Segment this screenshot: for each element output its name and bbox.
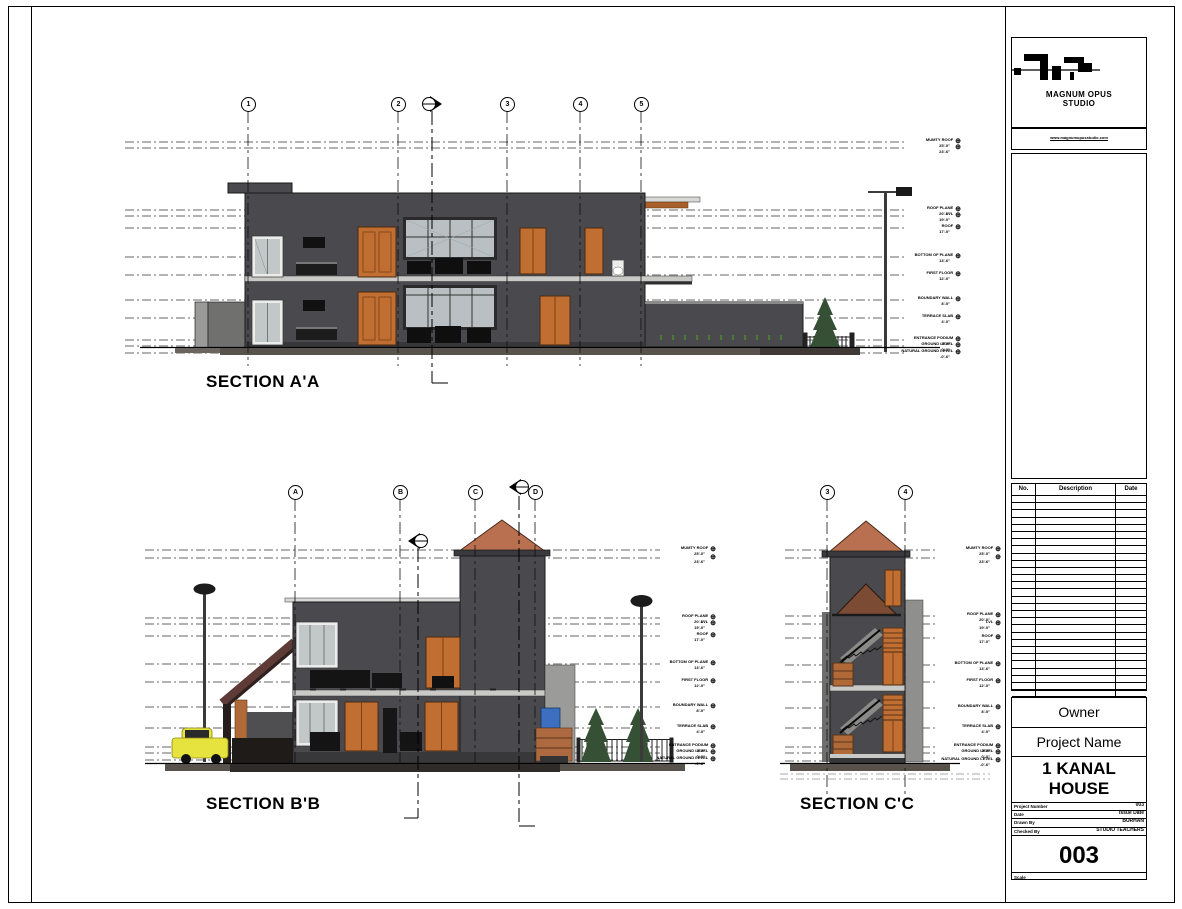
revision-row xyxy=(1012,532,1146,539)
grid-bubble-d: D xyxy=(528,485,543,500)
revision-row xyxy=(1012,582,1146,589)
scale-label: Scale xyxy=(1012,872,1146,885)
studio-name: MAGNUM OPUS STUDIO xyxy=(1012,90,1146,108)
binding-margin-line xyxy=(31,6,32,902)
level-label: LVL ⊕19'-0" xyxy=(648,620,716,631)
revision-row xyxy=(1012,669,1146,676)
field-checked-by: Checked BySTUDIO TEACHERS xyxy=(1012,828,1146,836)
level-label: ROOF ⊕17'-0" xyxy=(648,632,716,643)
door xyxy=(585,228,603,274)
door xyxy=(358,227,396,277)
revision-row xyxy=(1012,525,1146,532)
section-bb-title: SECTION B'B xyxy=(206,794,320,814)
level-label: BOUNDARY WALL ⊕8'-0" xyxy=(648,703,716,714)
level-label: TERRACE SLAB ⊕4'-0" xyxy=(893,314,961,325)
building-section-bb xyxy=(285,520,575,763)
level-label: ROOF ⊕17'-0" xyxy=(933,634,1001,645)
slat-screen xyxy=(883,695,903,720)
revision-row xyxy=(1012,618,1146,625)
section-aa-title: SECTION A'A xyxy=(206,372,320,392)
level-label: LVL ⊕19'-0" xyxy=(933,620,1001,631)
level-label: BOTTOM OF PLANE ⊕13'-6" xyxy=(893,253,961,264)
level-label: ⊕23'-6" xyxy=(933,554,1001,565)
revision-row xyxy=(1012,633,1146,640)
cabinet xyxy=(833,735,853,757)
revision-row xyxy=(1012,640,1146,647)
grid-bubble-5: 5 xyxy=(634,97,649,112)
revision-row xyxy=(1012,554,1146,561)
revision-row xyxy=(1012,518,1146,525)
level-label: ⊕23'-6" xyxy=(893,144,961,155)
furniture xyxy=(310,670,370,688)
level-label: ROOF ⊕17'-0" xyxy=(893,224,961,235)
section-aa-drawing xyxy=(120,85,965,400)
boundary-wall xyxy=(645,302,803,347)
revision-row xyxy=(1012,575,1146,582)
grid-bubble-2: 2 xyxy=(391,97,406,112)
tv xyxy=(303,237,325,248)
car-icon xyxy=(172,728,228,764)
revision-row xyxy=(1012,611,1146,618)
revision-row xyxy=(1012,496,1146,503)
carport xyxy=(223,643,295,763)
revision-row xyxy=(1012,676,1146,683)
level-label: FIRST FLOOR ⊕12'-0" xyxy=(933,678,1001,689)
grid-bubble-a: A xyxy=(288,485,303,500)
revision-row xyxy=(1012,661,1146,668)
cabinet xyxy=(833,663,853,686)
studio-logo xyxy=(1012,46,1102,86)
building-section-aa xyxy=(195,183,803,352)
section-marker-icon xyxy=(407,533,429,549)
wardrobe xyxy=(383,708,397,753)
level-label: BOTTOM OF PLANE ⊕13'-6" xyxy=(648,660,716,671)
title-block-divider xyxy=(1005,6,1006,902)
grid-bubble-4: 4 xyxy=(573,97,588,112)
title-block-blank-box xyxy=(1011,153,1147,479)
revision-row xyxy=(1012,561,1146,568)
level-label: BOTTOM OF PLANE ⊕13'-6" xyxy=(933,661,1001,672)
grid-bubble-c: C xyxy=(468,485,483,500)
section-marker-icon xyxy=(508,479,530,495)
level-label: LVL ⊕19'-0" xyxy=(893,212,961,223)
revision-row xyxy=(1012,597,1146,604)
section-marker-icon xyxy=(421,96,443,112)
door xyxy=(358,292,396,345)
level-label: NATURAL GROUND LEVEL ⊕-0'-6" xyxy=(893,349,961,360)
pyramid-roof xyxy=(458,520,546,552)
revision-row xyxy=(1012,589,1146,596)
revision-row xyxy=(1012,539,1146,546)
section-cc-drawing xyxy=(780,480,1005,830)
tower xyxy=(460,556,545,763)
revision-row xyxy=(1012,510,1146,517)
project-name: Project Name xyxy=(1012,728,1146,757)
revision-table-header: No. Description Date xyxy=(1012,484,1146,496)
plinth xyxy=(293,752,545,763)
grid-bubble-3: 3 xyxy=(500,97,515,112)
level-label: TERRACE SLAB ⊕4'-0" xyxy=(648,724,716,735)
owner-label: Owner xyxy=(1012,698,1146,728)
revision-row xyxy=(1012,604,1146,611)
grid-bubble-4c: 4 xyxy=(898,485,913,500)
building-section-cc xyxy=(822,521,923,764)
revision-row xyxy=(1012,654,1146,661)
grid-bubble-b: B xyxy=(393,485,408,500)
grid-bubble-3c: 3 xyxy=(820,485,835,500)
level-label: FIRST FLOOR ⊕12'-0" xyxy=(648,678,716,689)
section-cc-title: SECTION C'C xyxy=(800,794,914,814)
pyramid-roof xyxy=(828,521,905,553)
sheet-number: 003 xyxy=(1012,836,1146,872)
revision-row xyxy=(1012,568,1146,575)
ground-line xyxy=(145,764,705,773)
level-label: BOUNDARY WALL ⊕8'-0" xyxy=(933,704,1001,715)
drawing-sheet: 1 2 3 4 5 A B C D 3 4 SECTION A'A SECTIO… xyxy=(0,0,1182,909)
tree-icon xyxy=(810,297,840,352)
project-title: 1 KANAL HOUSE xyxy=(1012,757,1146,803)
revision-row xyxy=(1012,546,1146,553)
tv xyxy=(303,300,325,311)
revision-row xyxy=(1012,647,1146,654)
water-feature xyxy=(541,708,560,728)
level-label: NATURAL GROUND LEVEL ⊕-0'-6" xyxy=(648,756,716,767)
level-label: BOUNDARY WALL ⊕8'-0" xyxy=(893,296,961,307)
level-label: ⊕23'-6" xyxy=(648,554,716,565)
revision-table: No. Description Date xyxy=(1011,483,1147,691)
revision-row xyxy=(1012,625,1146,632)
section-bb-drawing xyxy=(120,480,770,830)
ground-line xyxy=(140,348,940,356)
level-label: NATURAL GROUND LEVEL ⊕-0'-6" xyxy=(933,757,1001,768)
title-block-logo-box: MAGNUM OPUS STUDIO xyxy=(1011,37,1147,128)
studio-website: www.magnumopusstudio.com xyxy=(1012,129,1146,140)
floor-slab xyxy=(293,690,545,696)
revision-row xyxy=(1012,683,1146,690)
title-block-website-box: www.magnumopusstudio.com xyxy=(1011,128,1147,150)
level-label: FIRST FLOOR ⊕12'-0" xyxy=(893,271,961,282)
project-info-box: Owner Project Name 1 KANAL HOUSE Project… xyxy=(1011,697,1147,880)
level-label: TERRACE SLAB ⊕4'-0" xyxy=(933,724,1001,735)
floor-slab xyxy=(245,276,692,282)
grid-bubble-1: 1 xyxy=(241,97,256,112)
revision-row xyxy=(1012,503,1146,510)
